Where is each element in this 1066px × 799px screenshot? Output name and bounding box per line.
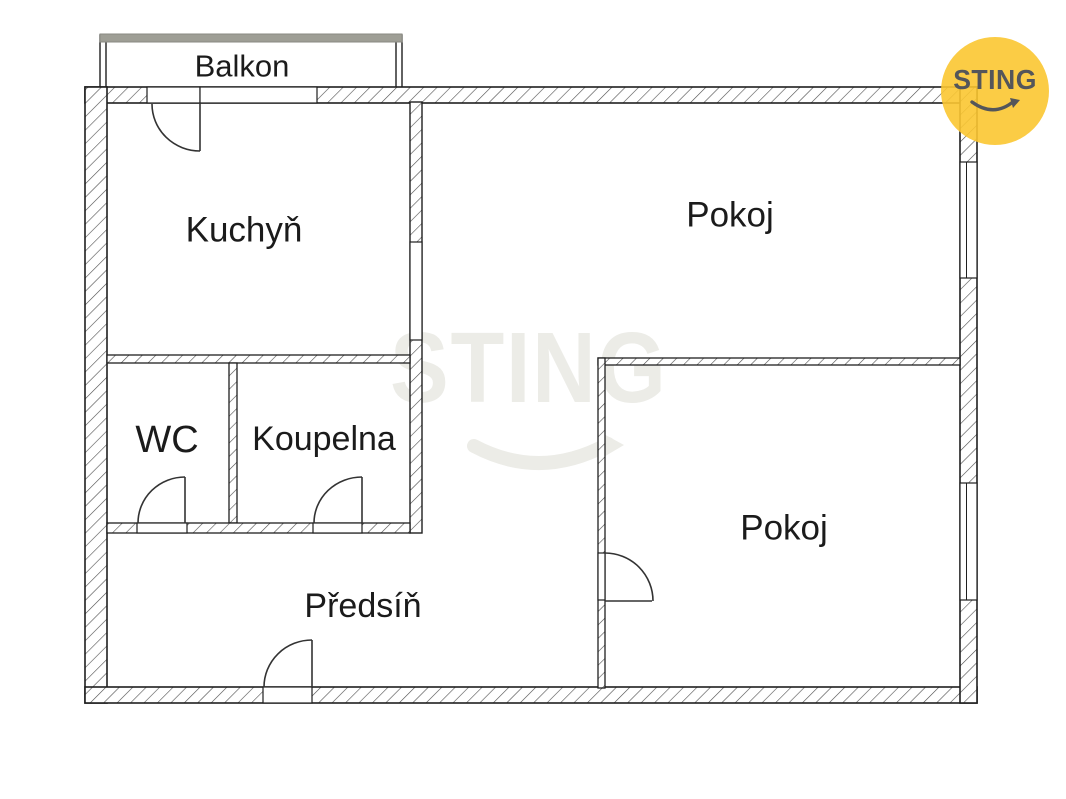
balcony-rail-right [396, 35, 402, 88]
balcony-rail-left [100, 35, 106, 88]
wc-door-opening [137, 523, 187, 533]
pokoj-bottom-door [605, 553, 653, 601]
outer-wall-bottom [85, 687, 977, 703]
entrance-door [264, 640, 312, 687]
balcony-rail-top [100, 34, 402, 42]
room-label-pokoj-bottom: Pokoj [740, 511, 828, 546]
sting-logo-smile-icon [964, 97, 1026, 119]
koupelna-door [314, 477, 362, 523]
rooms-separator-wall [598, 358, 960, 365]
kitchen-to-room-opening [410, 242, 422, 340]
sting-logo-text: STING [953, 66, 1037, 94]
outer-wall-left [85, 87, 107, 703]
floor-plan-drawing [0, 0, 1066, 799]
interior-walls [107, 102, 960, 688]
room-label-predsin: Předsíň [304, 589, 421, 623]
room-label-pokoj-top: Pokoj [686, 198, 774, 233]
room-label-kuchyn: Kuchyň [186, 213, 303, 248]
balcony-door-opening [147, 87, 200, 103]
pokoj-bottom-left-wall [598, 358, 605, 688]
floor-plan-canvas: STING [0, 0, 1066, 799]
room-label-balkon: Balkon [195, 51, 290, 82]
room-label-wc: WC [135, 421, 198, 459]
wc-door [138, 477, 185, 523]
kitchen-bottom-wall [107, 355, 410, 363]
right-wall-window-upper [960, 162, 977, 278]
koupelna-door-opening [313, 523, 362, 533]
top-wall-window [200, 87, 317, 103]
balcony-door [152, 103, 200, 151]
wc-koupelna-divider [229, 363, 237, 523]
right-wall-window-lower [960, 483, 977, 600]
outer-walls [85, 87, 977, 703]
pokoj-bottom-door-opening [598, 553, 605, 600]
sting-logo: STING [941, 37, 1049, 145]
room-label-koupelna: Koupelna [252, 422, 396, 456]
wall-openings [137, 87, 977, 703]
entrance-door-opening [263, 687, 312, 703]
